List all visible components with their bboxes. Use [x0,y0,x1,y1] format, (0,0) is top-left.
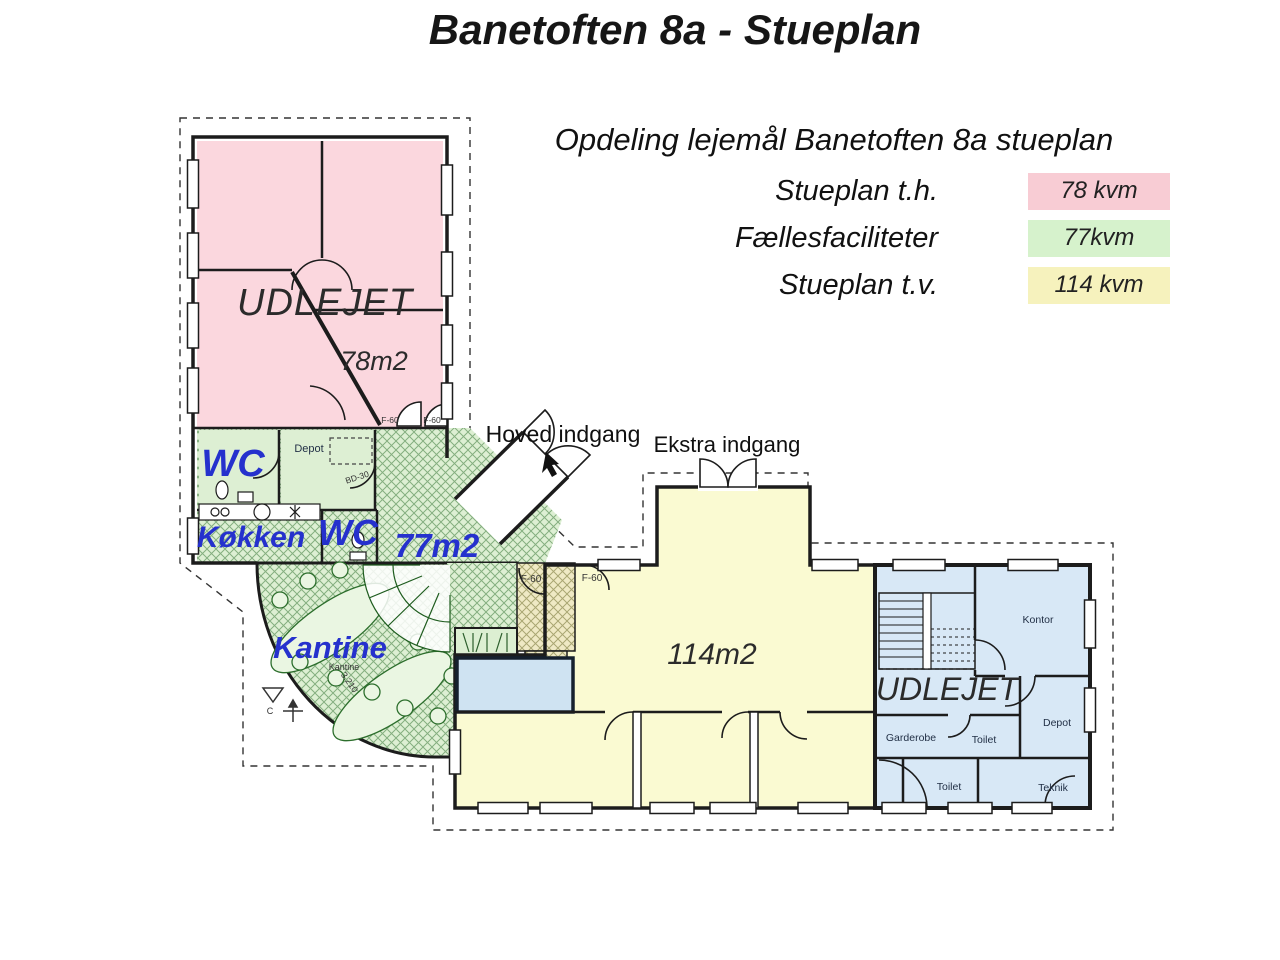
teknik-label: Teknik [1038,782,1069,794]
wc2-label: WC [318,512,379,553]
left-unit-status-label: UDLEJET [237,282,415,324]
room-light-blue [457,658,573,712]
wc1-label: WC [201,443,265,485]
fire-door-label: F-60 [521,574,542,585]
toilet-lower-label: Toilet [937,781,962,793]
left-unit-area-label: 78m2 [340,346,408,376]
garderobe-label: Garderobe [886,732,936,744]
wall-double [750,712,758,808]
floor-plan-drawing: UDLEJET 78m2 WC Depot BD-30 Køkken WC 77… [0,0,1280,960]
kitchen-label: Køkken [197,521,305,554]
canteen-small-label: Kantine [329,662,360,672]
fire-door-label: F-60 [381,415,399,425]
extra-entrance-label: Ekstra indgang [654,432,801,457]
kontor-label: Kontor [1023,614,1054,626]
common-area-label: 77m2 [395,527,480,564]
main-entrance-label: Hoved indgang [486,421,641,447]
kitchen-sink [211,508,219,516]
kitchen-hob [254,504,270,520]
kitchen-sink [221,508,229,516]
triangle-marker-icon [263,688,283,702]
compass-label: C [267,706,274,716]
right-open-area-label: 114m2 [667,638,757,671]
wall-double [633,712,641,808]
fire-door-label: F-60 [423,415,441,425]
extra-door-leaf [728,459,756,487]
floor-plan-page: Banetoften 8a - Stueplan Opdeling lejemå… [0,0,1280,960]
site-markers [263,688,303,722]
sink-icon [350,552,366,560]
depot-right-label: Depot [1043,717,1071,729]
north-cross-icon [283,700,303,722]
toilet-upper-label: Toilet [972,734,997,746]
right-unit-status-label: UDLEJET [876,671,1021,707]
canteen-label: Kantine [273,630,387,665]
sink-icon [238,492,253,502]
fire-door-label: F-60 [582,573,603,584]
depot-label: Depot [294,443,323,455]
extra-door-leaf [700,459,728,487]
